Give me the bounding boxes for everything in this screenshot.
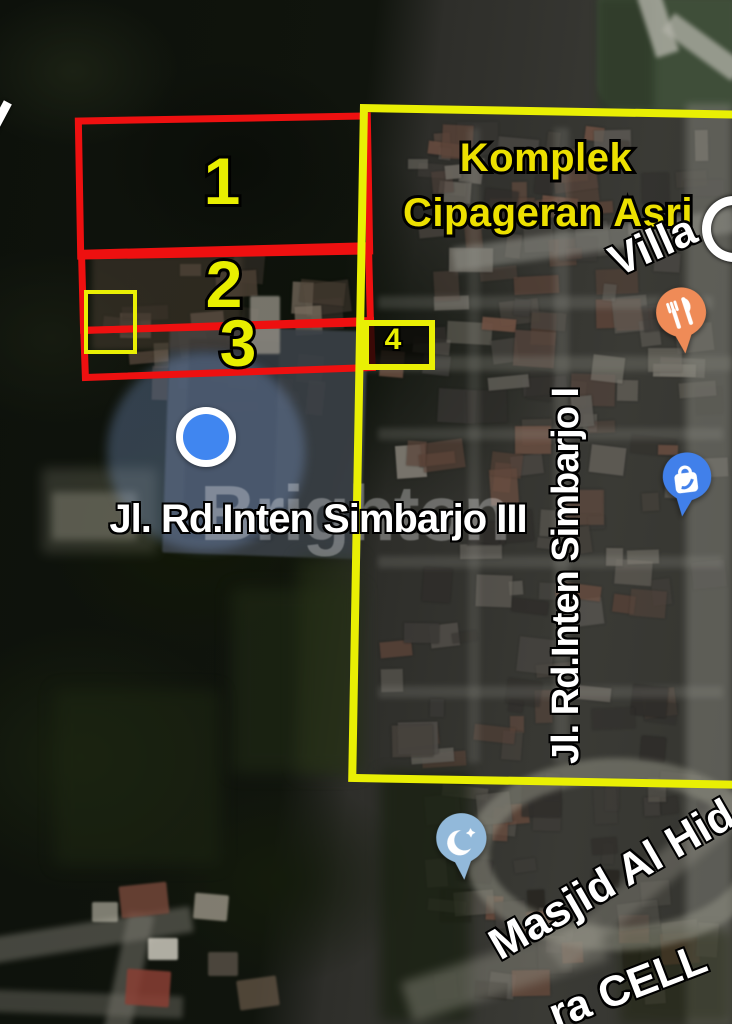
restaurant-pin[interactable] [649,282,714,360]
road-label-simbarjo-1: Jl. Rd.Inten Simbarjo I [547,388,585,764]
plot-number-3: 3 [220,310,257,376]
map-surface-patch [193,893,229,922]
map-surface-patch [125,969,171,1008]
pin-balloon [654,285,711,356]
map-surface-patch [208,952,238,976]
satellite-map-canvas[interactable]: Brighton 1 2 3 4 Komplek Cipageran Asri … [0,0,732,1024]
current-location-dot [183,414,229,460]
map-surface-patch [148,938,178,960]
map-surface-patch [55,690,220,865]
plot-number-1: 1 [204,148,241,214]
map-surface-patch [236,975,280,1010]
map-surface-patch [92,902,118,922]
plot-number-4: 4 [385,325,402,355]
shopping-pin[interactable] [654,447,718,523]
small-yellow-marker-box [84,290,137,354]
komplek-label-line1: Komplek [460,138,632,178]
road-label-simbarjo-3: Jl. Rd.Inten Simbarjo III [109,499,526,539]
map-surface-patch [118,882,169,919]
mosque-pin[interactable] [430,808,493,886]
